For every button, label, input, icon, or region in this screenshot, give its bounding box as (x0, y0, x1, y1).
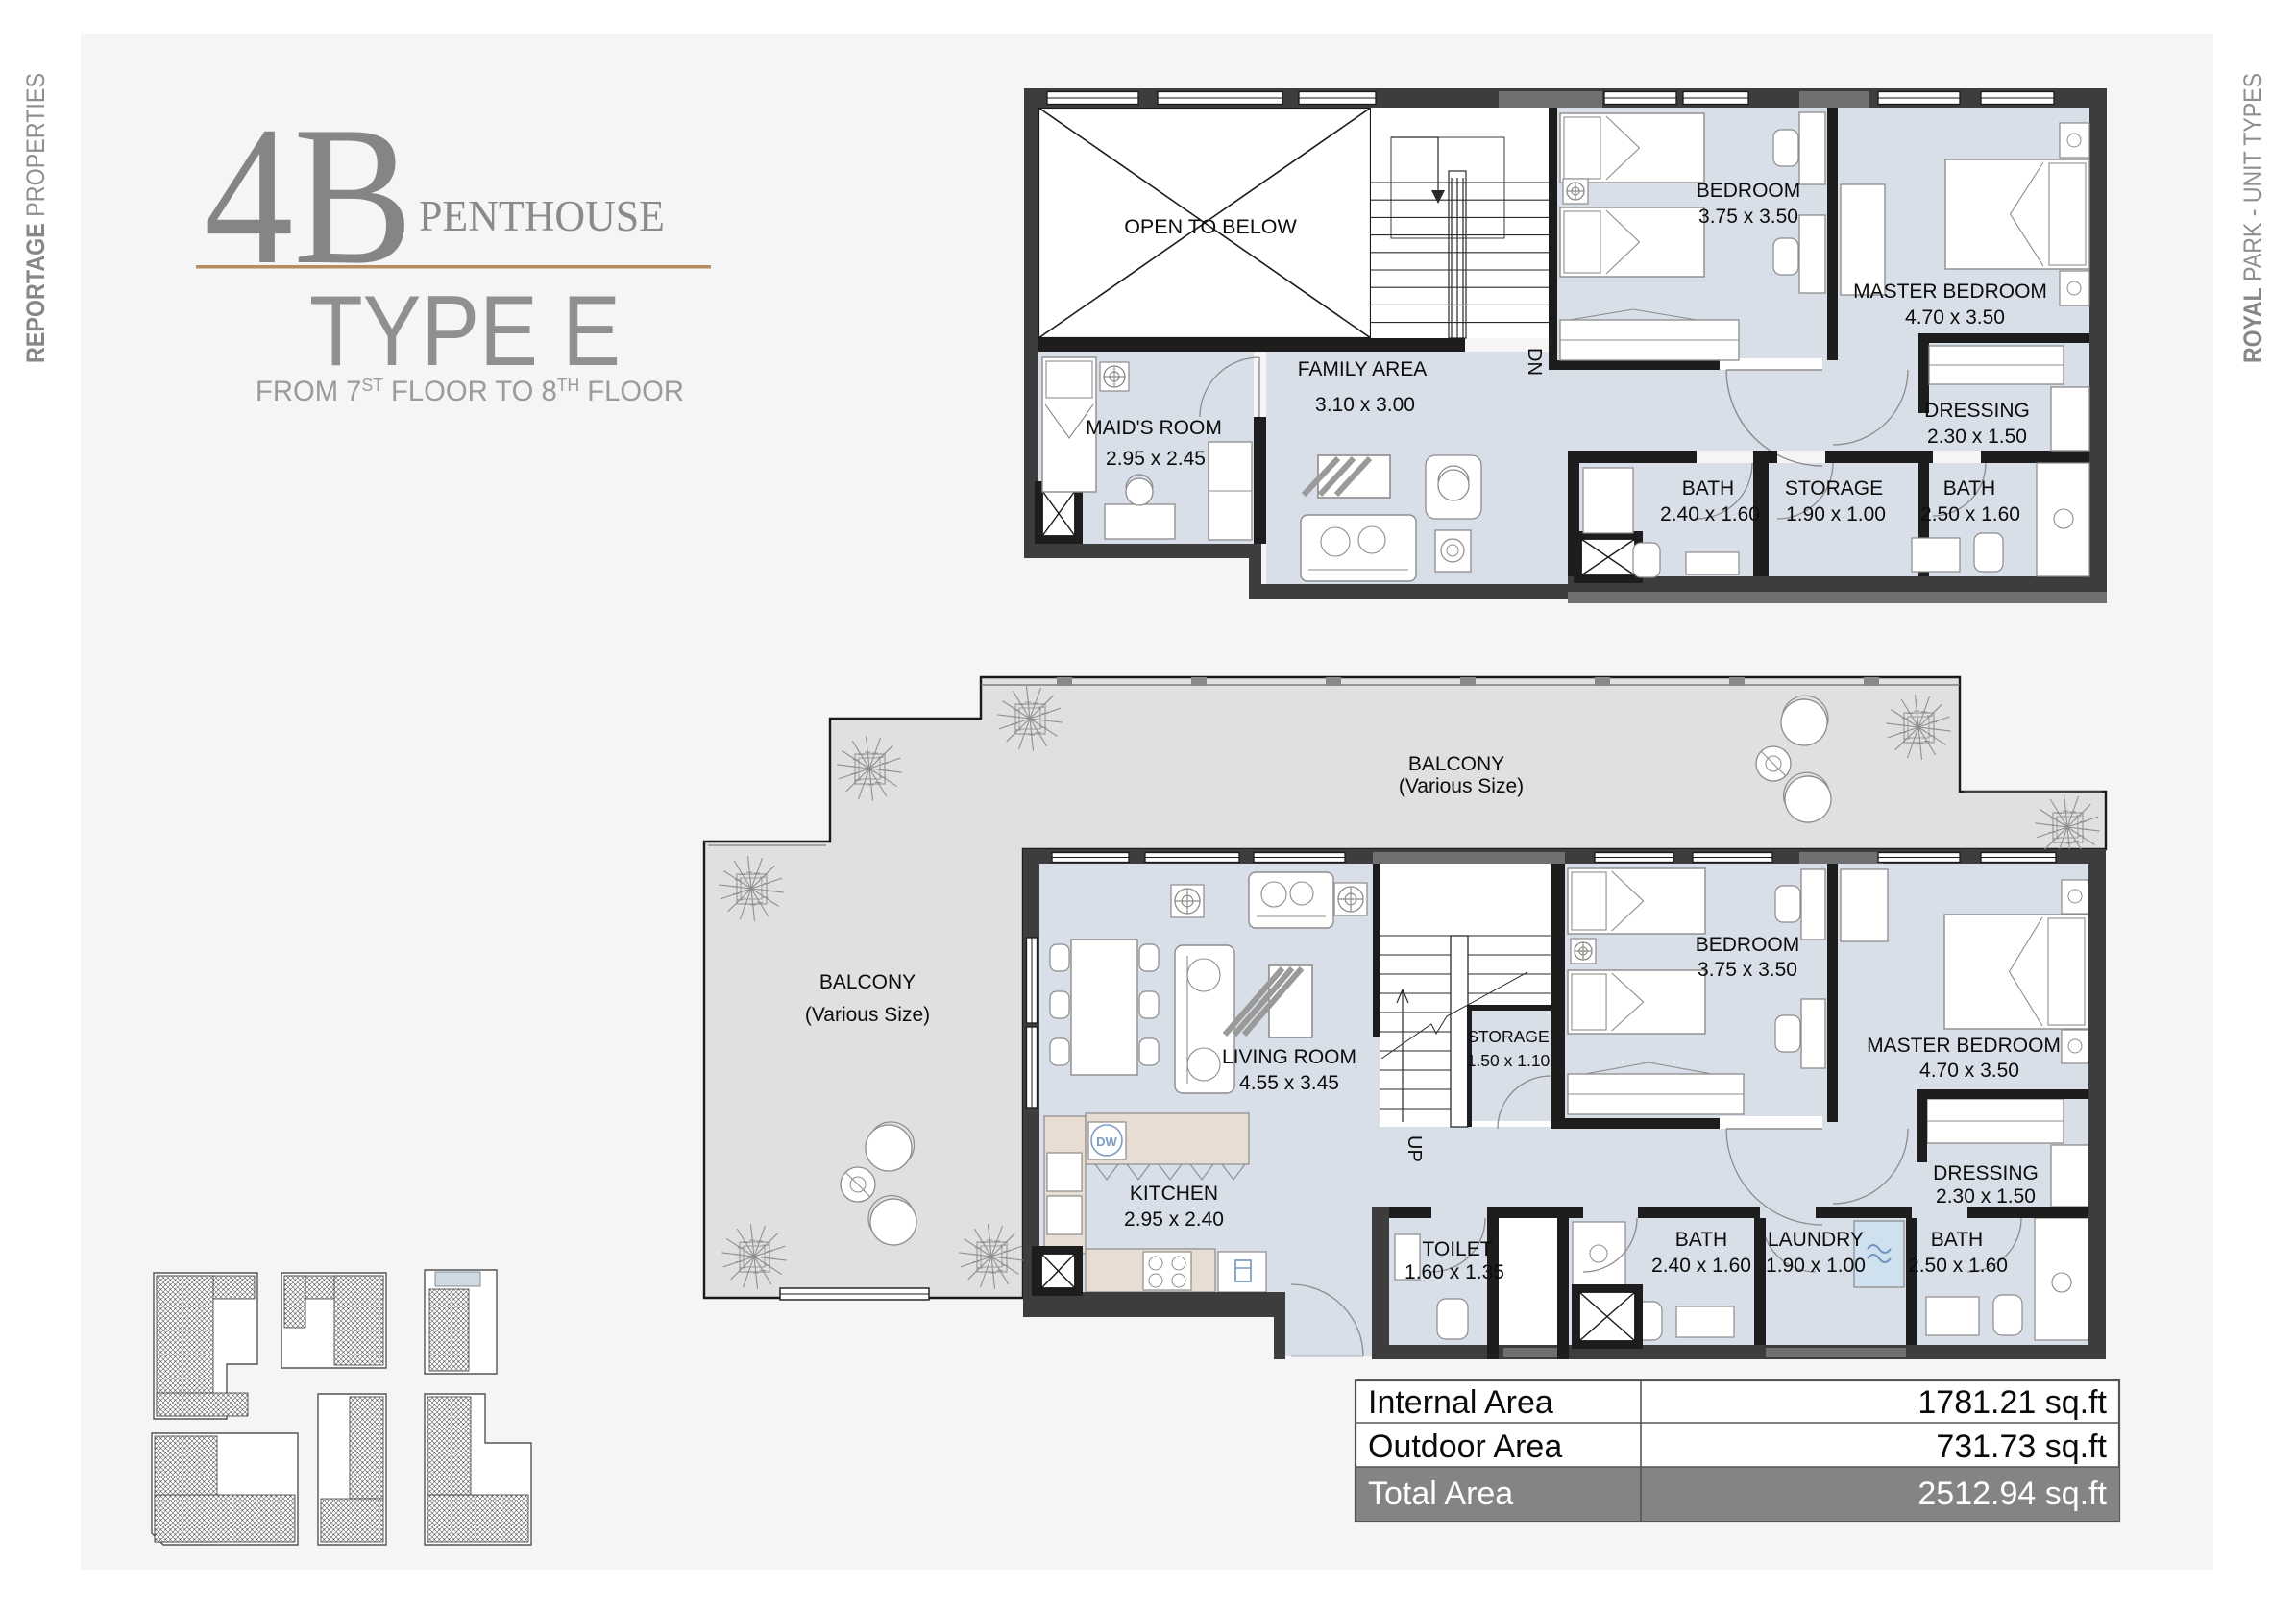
svg-text:ROYAL PARK - UNIT TYPES: ROYAL PARK - UNIT TYPES (2238, 73, 2267, 363)
svg-text:BALCONY: BALCONY (1408, 753, 1504, 775)
svg-text:REPORTAGE PROPERTIES: REPORTAGE PROPERTIES (21, 73, 50, 363)
svg-text:FROM 7ST FLOOR TO 8TH FLOOR: FROM 7ST FLOOR TO 8TH FLOOR (256, 376, 684, 407)
svg-text:MASTER BEDROOM: MASTER BEDROOM (1853, 281, 2047, 303)
svg-text:Outdoor Area: Outdoor Area (1368, 1428, 1562, 1465)
svg-text:2.95 x 2.45: 2.95 x 2.45 (1106, 448, 1206, 470)
svg-text:4.70 x 3.50: 4.70 x 3.50 (1905, 306, 2005, 329)
svg-text:BATH: BATH (1943, 477, 1995, 500)
svg-text:2.50 x 1.60: 2.50 x 1.60 (1908, 1255, 2008, 1277)
svg-text:4B: 4B (204, 85, 413, 305)
svg-text:MAID'S ROOM: MAID'S ROOM (1086, 417, 1222, 439)
svg-text:PENTHOUSE: PENTHOUSE (419, 192, 665, 240)
svg-text:LAUNDRY: LAUNDRY (1768, 1229, 1864, 1251)
svg-text:3.75 x 3.50: 3.75 x 3.50 (1698, 959, 1797, 981)
svg-text:2.30 x 1.50: 2.30 x 1.50 (1927, 426, 2027, 448)
svg-text:DRESSING: DRESSING (1924, 400, 2030, 422)
svg-text:BALCONY: BALCONY (819, 971, 916, 993)
svg-text:(Various Size): (Various Size) (805, 1004, 930, 1026)
svg-text:2.30 x 1.50: 2.30 x 1.50 (1936, 1185, 2036, 1208)
svg-text:UP: UP (1404, 1135, 1425, 1162)
svg-text:KITCHEN: KITCHEN (1130, 1183, 1218, 1205)
svg-text:OPEN TO BELOW: OPEN TO BELOW (1124, 215, 1297, 238)
svg-text:BEDROOM: BEDROOM (1696, 934, 1800, 956)
svg-text:1.60 x 1.35: 1.60 x 1.35 (1404, 1261, 1504, 1283)
svg-text:2.40 x 1.60: 2.40 x 1.60 (1660, 503, 1760, 525)
svg-text:4.70 x 3.50: 4.70 x 3.50 (1919, 1060, 2019, 1082)
svg-text:MASTER BEDROOM: MASTER BEDROOM (1867, 1035, 2061, 1057)
svg-text:4.55 x 3.45: 4.55 x 3.45 (1239, 1072, 1339, 1094)
svg-text:BEDROOM: BEDROOM (1697, 180, 1801, 202)
svg-text:2.95 x 2.40: 2.95 x 2.40 (1124, 1208, 1224, 1231)
svg-text:TOILET: TOILET (1422, 1238, 1492, 1260)
svg-text:Internal Area: Internal Area (1368, 1384, 1553, 1421)
svg-text:STORAGE: STORAGE (1785, 477, 1883, 500)
svg-text:3.10 x 3.00: 3.10 x 3.00 (1315, 394, 1415, 416)
svg-text:1.90 x 1.00: 1.90 x 1.00 (1766, 1255, 1866, 1277)
svg-text:(Various Size): (Various Size) (1399, 775, 1524, 797)
svg-text:2512.94 sq.ft: 2512.94 sq.ft (1917, 1476, 2107, 1512)
svg-text:DN: DN (1524, 348, 1545, 376)
svg-text:BATH: BATH (1682, 477, 1734, 500)
svg-text:LIVING ROOM: LIVING ROOM (1222, 1046, 1356, 1068)
svg-text:3.75 x 3.50: 3.75 x 3.50 (1698, 206, 1798, 228)
svg-text:2.50 x 1.60: 2.50 x 1.60 (1920, 503, 2020, 525)
svg-text:731.73 sq.ft: 731.73 sq.ft (1936, 1428, 2107, 1465)
svg-text:DW: DW (1096, 1135, 1117, 1149)
svg-text:TYPE E: TYPE E (309, 276, 621, 387)
svg-text:BATH: BATH (1675, 1229, 1727, 1251)
svg-text:2.40 x 1.60: 2.40 x 1.60 (1651, 1255, 1751, 1277)
svg-text:1.90 x 1.00: 1.90 x 1.00 (1786, 503, 1886, 525)
svg-text:DRESSING: DRESSING (1933, 1162, 2039, 1184)
svg-text:1.50 x 1.10: 1.50 x 1.10 (1467, 1051, 1551, 1070)
svg-text:BATH: BATH (1931, 1229, 1983, 1251)
svg-text:FAMILY AREA: FAMILY AREA (1298, 358, 1428, 380)
svg-text:1781.21 sq.ft: 1781.21 sq.ft (1917, 1384, 2107, 1421)
svg-text:STORAGE: STORAGE (1467, 1027, 1549, 1046)
svg-text:Total Area: Total Area (1368, 1476, 1513, 1512)
